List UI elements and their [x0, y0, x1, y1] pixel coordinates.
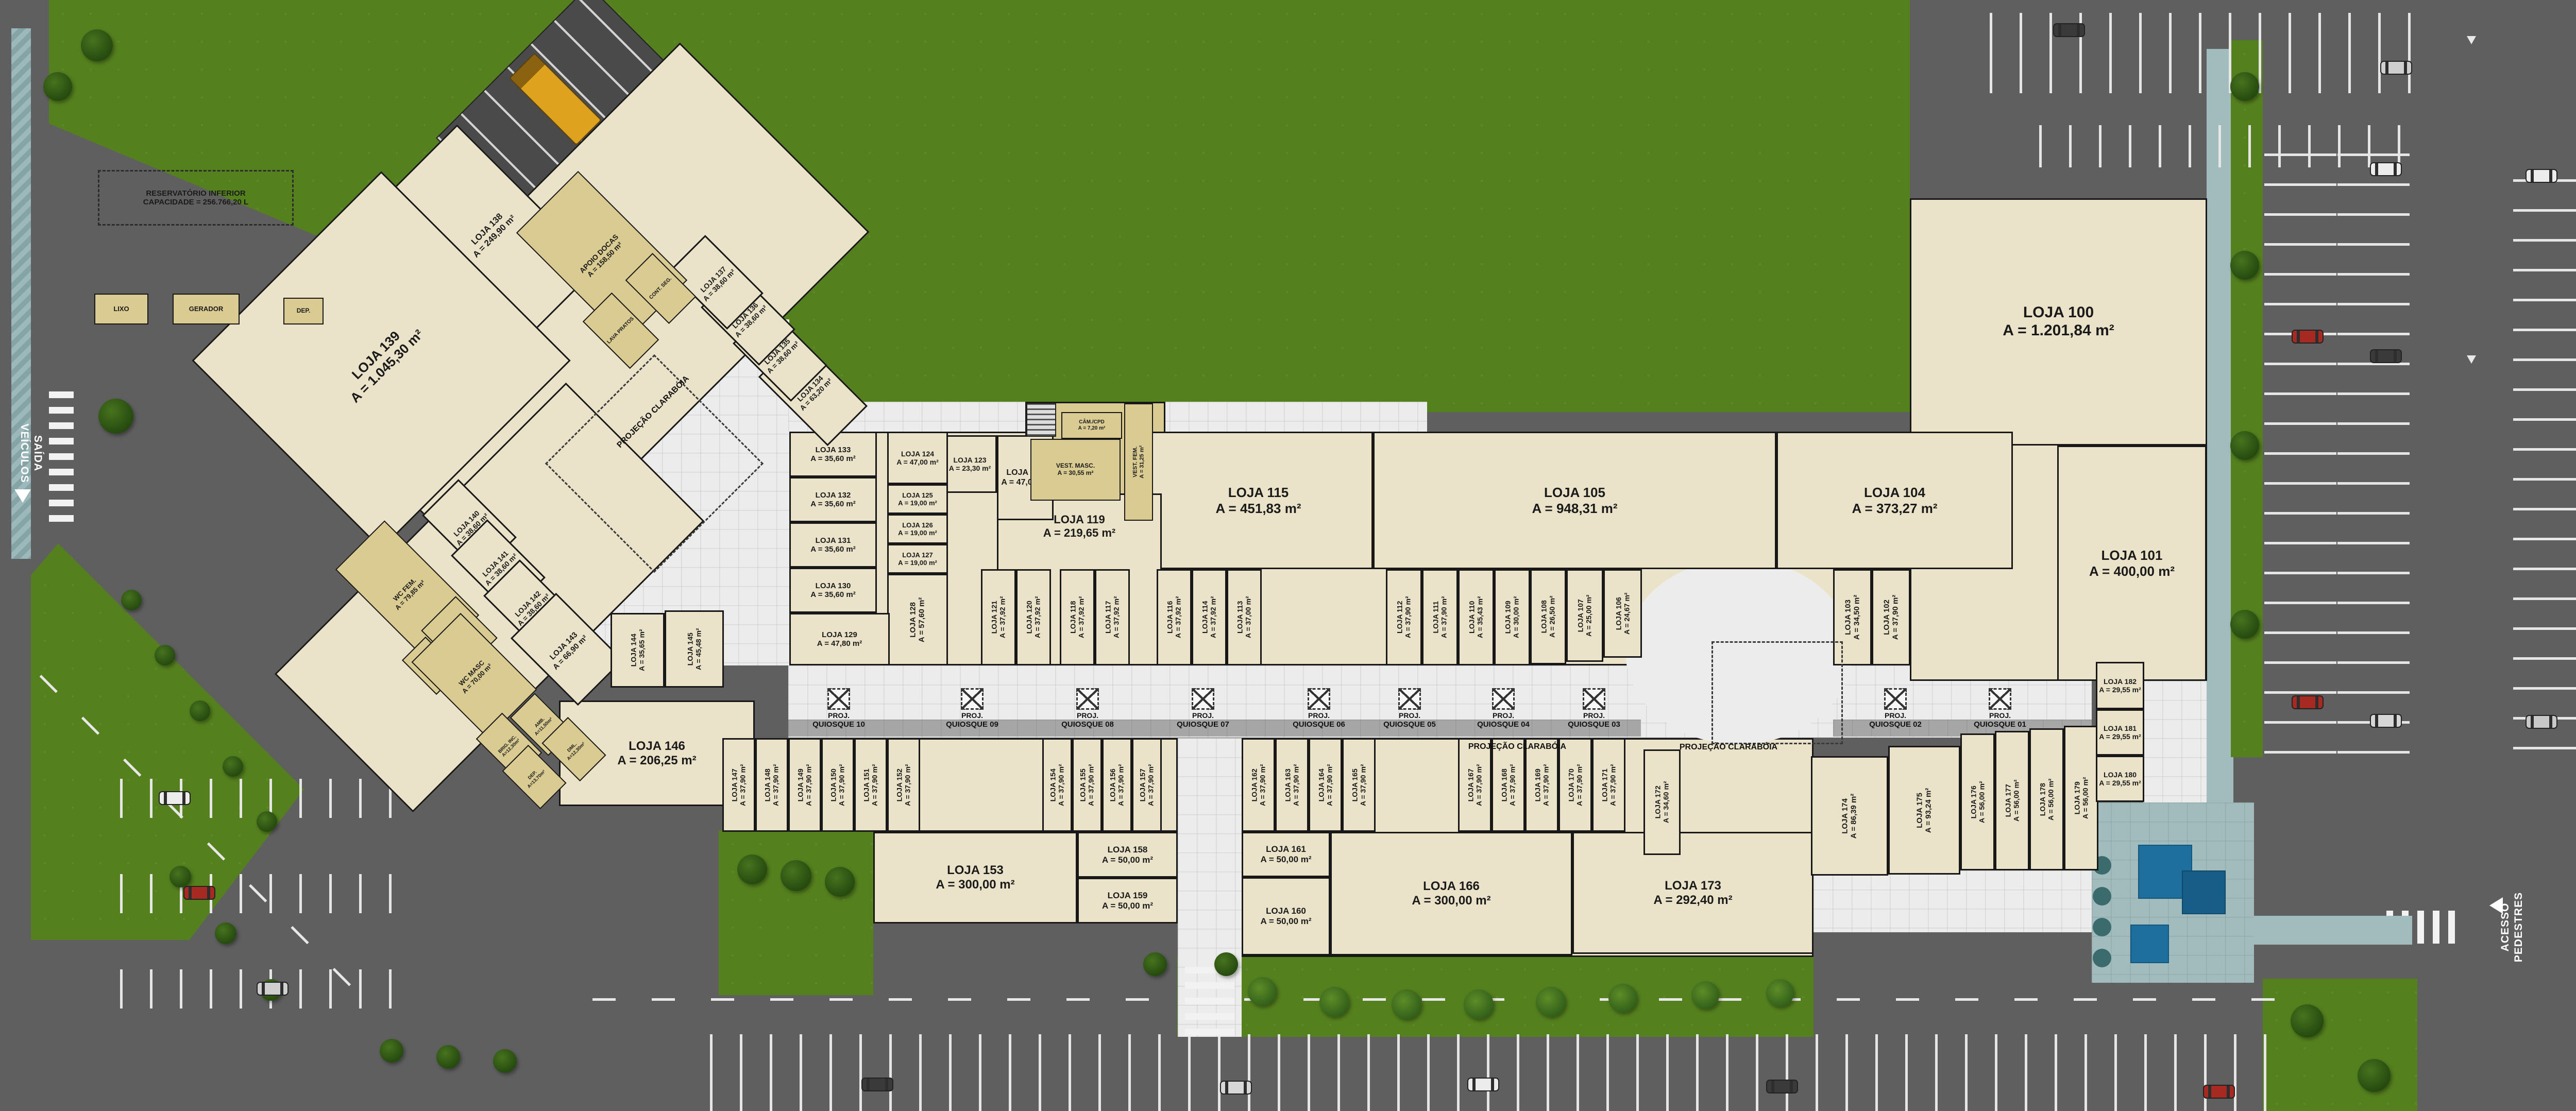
reservoir-area: RESERVATÓRIO INFERIORCAPACIDADE = 256.76… — [98, 170, 294, 226]
reservoir-line2: CAPACIDADE = 256.766,20 L — [143, 198, 248, 207]
kiosk-proj-text: PROJ. — [1308, 711, 1330, 720]
kiosk-proj-label: PROJ. — [1379, 711, 1440, 720]
exit-arrow-icon — [14, 489, 31, 503]
kiosk-projection-box — [1076, 688, 1099, 710]
kiosk-projection-box — [1989, 688, 2011, 710]
kiosk-projection-box — [1492, 688, 1515, 710]
kiosk-name-label: QUIOSQUE 07 — [1159, 720, 1247, 729]
kiosk-proj-label: PROJ. — [941, 711, 1003, 720]
kiosk-projection-box — [1583, 688, 1605, 710]
kiosk-proj-text: PROJ. — [828, 711, 850, 720]
kiosk-proj-label: PROJ. — [1472, 711, 1534, 720]
kiosk-proj-text: PROJ. — [1583, 711, 1605, 720]
kiosk-projection-box — [1192, 688, 1214, 710]
kiosk-projection-box — [827, 688, 850, 710]
kiosk-projection-box — [1398, 688, 1421, 710]
kiosk-name-text: QUIOSQUE 04 — [1477, 720, 1530, 729]
skylight-label: PROJEÇÃO CLARABÓIA — [1662, 742, 1795, 753]
kiosk-name-text: QUIOSQUE 03 — [1568, 720, 1620, 729]
road-direction-arrow — [2467, 355, 2476, 364]
kiosk-name-text: QUIOSQUE 05 — [1383, 720, 1436, 729]
skylight-projection-outline — [1711, 641, 1843, 744]
kiosk-name-label: QUIOSQUE 02 — [1852, 720, 1939, 729]
kiosk-projection-box — [1884, 688, 1907, 710]
kiosk-proj-label: PROJ. — [1969, 711, 2031, 720]
kiosk-proj-label: PROJ. — [1172, 711, 1234, 720]
reservoir-label: RESERVATÓRIO INFERIORCAPACIDADE = 256.76… — [143, 189, 248, 207]
exit-label-line1: SAÍDA — [31, 386, 44, 520]
kiosk-name-text: QUIOSQUE 06 — [1293, 720, 1345, 729]
kiosk-name-label: QUIOSQUE 10 — [795, 720, 883, 729]
skylight-label-text: PROJEÇÃO CLARABÓIA — [1468, 742, 1566, 751]
kiosk-name-label: QUIOSQUE 04 — [1460, 720, 1547, 729]
pedestrian-access-label: ACESSOPEDESTRES — [2499, 850, 2528, 1004]
access-arrow-icon — [2489, 897, 2503, 914]
kiosk-name-label: QUIOSQUE 08 — [1044, 720, 1131, 729]
kiosk-proj-label: PROJ. — [1563, 711, 1625, 720]
kiosk-proj-text: PROJ. — [1192, 711, 1214, 720]
kiosk-name-text: QUIOSQUE 07 — [1177, 720, 1229, 729]
kiosk-proj-text: PROJ. — [1399, 711, 1420, 720]
kiosk-name-label: QUIOSQUE 03 — [1550, 720, 1638, 729]
kiosk-name-text: QUIOSQUE 09 — [946, 720, 998, 729]
kiosk-projection-box — [961, 688, 984, 710]
kiosk-proj-label: PROJ. — [1288, 711, 1350, 720]
access-label-line1: ACESSO — [2499, 850, 2512, 1004]
kiosk-proj-text: PROJ. — [1885, 711, 1906, 720]
skylight-label-text: PROJEÇÃO CLARABÓIA — [615, 374, 691, 450]
reservoir-line1: RESERVATÓRIO INFERIOR — [143, 189, 248, 198]
kiosk-proj-text: PROJ. — [1493, 711, 1514, 720]
skylight-label-text: PROJEÇÃO CLARABÓIA — [1680, 743, 1777, 752]
kiosk-projection-box — [1308, 688, 1330, 710]
kiosk-name-label: QUIOSQUE 05 — [1366, 720, 1453, 729]
kiosk-name-text: QUIOSQUE 08 — [1061, 720, 1114, 729]
shopping-center-site-plan: LOJA 100A = 1.201,84 m²LOJA 101A = 400,0… — [0, 0, 2576, 1111]
skylight-label: PROJEÇÃO CLARABÓIA — [1450, 742, 1584, 752]
kiosk-proj-label: PROJ. — [808, 711, 870, 720]
kiosk-proj-text: PROJ. — [961, 711, 983, 720]
kiosk-proj-label: PROJ. — [1057, 711, 1118, 720]
kiosk-name-text: QUIOSQUE 01 — [1974, 720, 2026, 729]
kiosk-name-label: QUIOSQUE 09 — [928, 720, 1016, 729]
kiosk-name-text: QUIOSQUE 10 — [812, 720, 865, 729]
kiosk-name-label: QUIOSQUE 01 — [1956, 720, 2044, 729]
kiosk-proj-text: PROJ. — [1077, 711, 1098, 720]
kiosk-name-text: QUIOSQUE 02 — [1869, 720, 1922, 729]
road-direction-arrow — [2467, 36, 2476, 44]
labels-layer: PROJ.QUIOSQUE 10PROJ.QUIOSQUE 09PROJ.QUI… — [0, 0, 2576, 1111]
kiosk-name-label: QUIOSQUE 06 — [1275, 720, 1363, 729]
kiosk-proj-text: PROJ. — [1989, 711, 2011, 720]
skylight-label: PROJEÇÃO CLARABÓIA — [602, 361, 704, 463]
kiosk-proj-label: PROJ. — [1865, 711, 1926, 720]
access-label-line2: PEDESTRES — [2512, 850, 2526, 1004]
